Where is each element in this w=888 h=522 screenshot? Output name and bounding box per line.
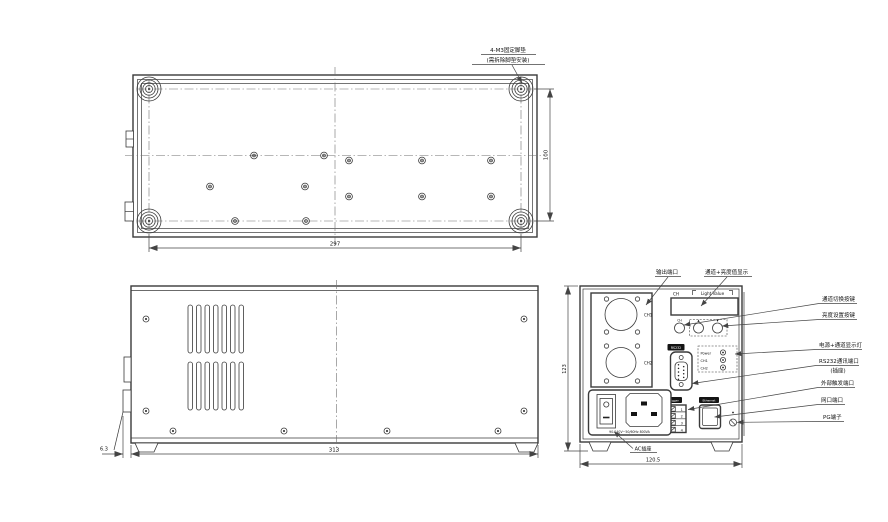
callout-display-text: 通道+亮度值显示 <box>705 268 749 276</box>
callout-rs232-text2: (插座) <box>830 367 845 375</box>
led-ch1-label: CH1 <box>701 359 708 363</box>
rs232-label: RS232 <box>671 346 681 350</box>
callout-channel-switch-text: 通道切换按键 <box>822 295 856 303</box>
callout-leds-text: 电源+通道显示灯 <box>819 341 863 349</box>
bottom-plate-view: 4-M3固定脚垫 (需拆除脚垫安装) 297 100 <box>125 46 554 252</box>
foot-pad-note-line2: (需拆除脚垫安装) <box>487 56 530 64</box>
callout-trigger-text: 外部触发端口 <box>821 379 854 387</box>
callout-pg-text: PG端子 <box>823 413 842 421</box>
led-ch2-label: CH2 <box>701 367 708 371</box>
callout-pg: PG端子 <box>737 413 844 422</box>
dim-297-text: 297 <box>330 242 341 248</box>
dim-6_3: 6.3 <box>100 416 123 458</box>
drawing-canvas: 4-M3固定脚垫 (需拆除脚垫安装) 297 100 <box>0 0 888 522</box>
display-ch-label: CH <box>673 292 679 297</box>
rear-foot-right <box>711 442 733 451</box>
output-ch2-label: CH2 <box>644 361 653 366</box>
side-view: 6.3 313 <box>100 280 538 458</box>
ethernet-label: Ethernet <box>703 399 717 403</box>
side-view-outline <box>131 286 538 443</box>
technical-drawing: 4-M3固定脚垫 (需拆除脚垫安装) 297 100 <box>0 0 888 522</box>
trigger-pin-1: 1 <box>681 408 683 412</box>
rear-panel-view: CH1 CH2 CH Light Value CH ▲ ▼ <box>562 286 744 468</box>
foot-pad-note-line1: 4-M3固定脚垫 <box>490 46 526 54</box>
output-ch1-label: CH1 <box>644 313 653 318</box>
ac-inlet-module: 90-240V~50/60Hz 800VA <box>589 390 672 435</box>
dim-313-text: 313 <box>329 448 340 454</box>
callout-leds: 电源+通道显示灯 <box>735 341 863 354</box>
output-panel: CH1 CH2 <box>591 293 653 387</box>
dim-100-text: 100 <box>544 149 550 160</box>
callout-brightness-set-text: 亮度设置按键 <box>822 311 856 319</box>
ethernet-port: Ethernet <box>699 397 721 429</box>
dim-123-text: 123 <box>562 364 568 374</box>
channel-button-label: CH <box>677 319 682 323</box>
dim-6_3-text: 6.3 <box>100 447 108 453</box>
side-foot-right <box>515 443 538 452</box>
callout-output-port-text: 输出端口 <box>656 268 678 276</box>
led-power-label: Power <box>701 352 712 356</box>
callout-rs232-text: RS232通讯端口 <box>819 357 859 365</box>
dim-120_5-text: 120.5 <box>646 458 660 464</box>
trigger-pin-2: 2 <box>681 415 683 419</box>
side-latch-lower <box>123 390 131 412</box>
side-latch-upper <box>124 357 131 382</box>
side-latch-leader <box>114 412 123 450</box>
callout-lan-text: 网口端口 <box>821 396 843 404</box>
display-window <box>671 298 738 315</box>
trigger-pin-3: 3 <box>681 422 683 426</box>
side-foot-left <box>135 443 158 452</box>
ac-socket-label: AC插座 <box>635 446 652 453</box>
rear-foot-left <box>589 442 611 451</box>
display-value-label: Light Value <box>701 291 725 296</box>
dim-313: 313 <box>131 445 538 458</box>
